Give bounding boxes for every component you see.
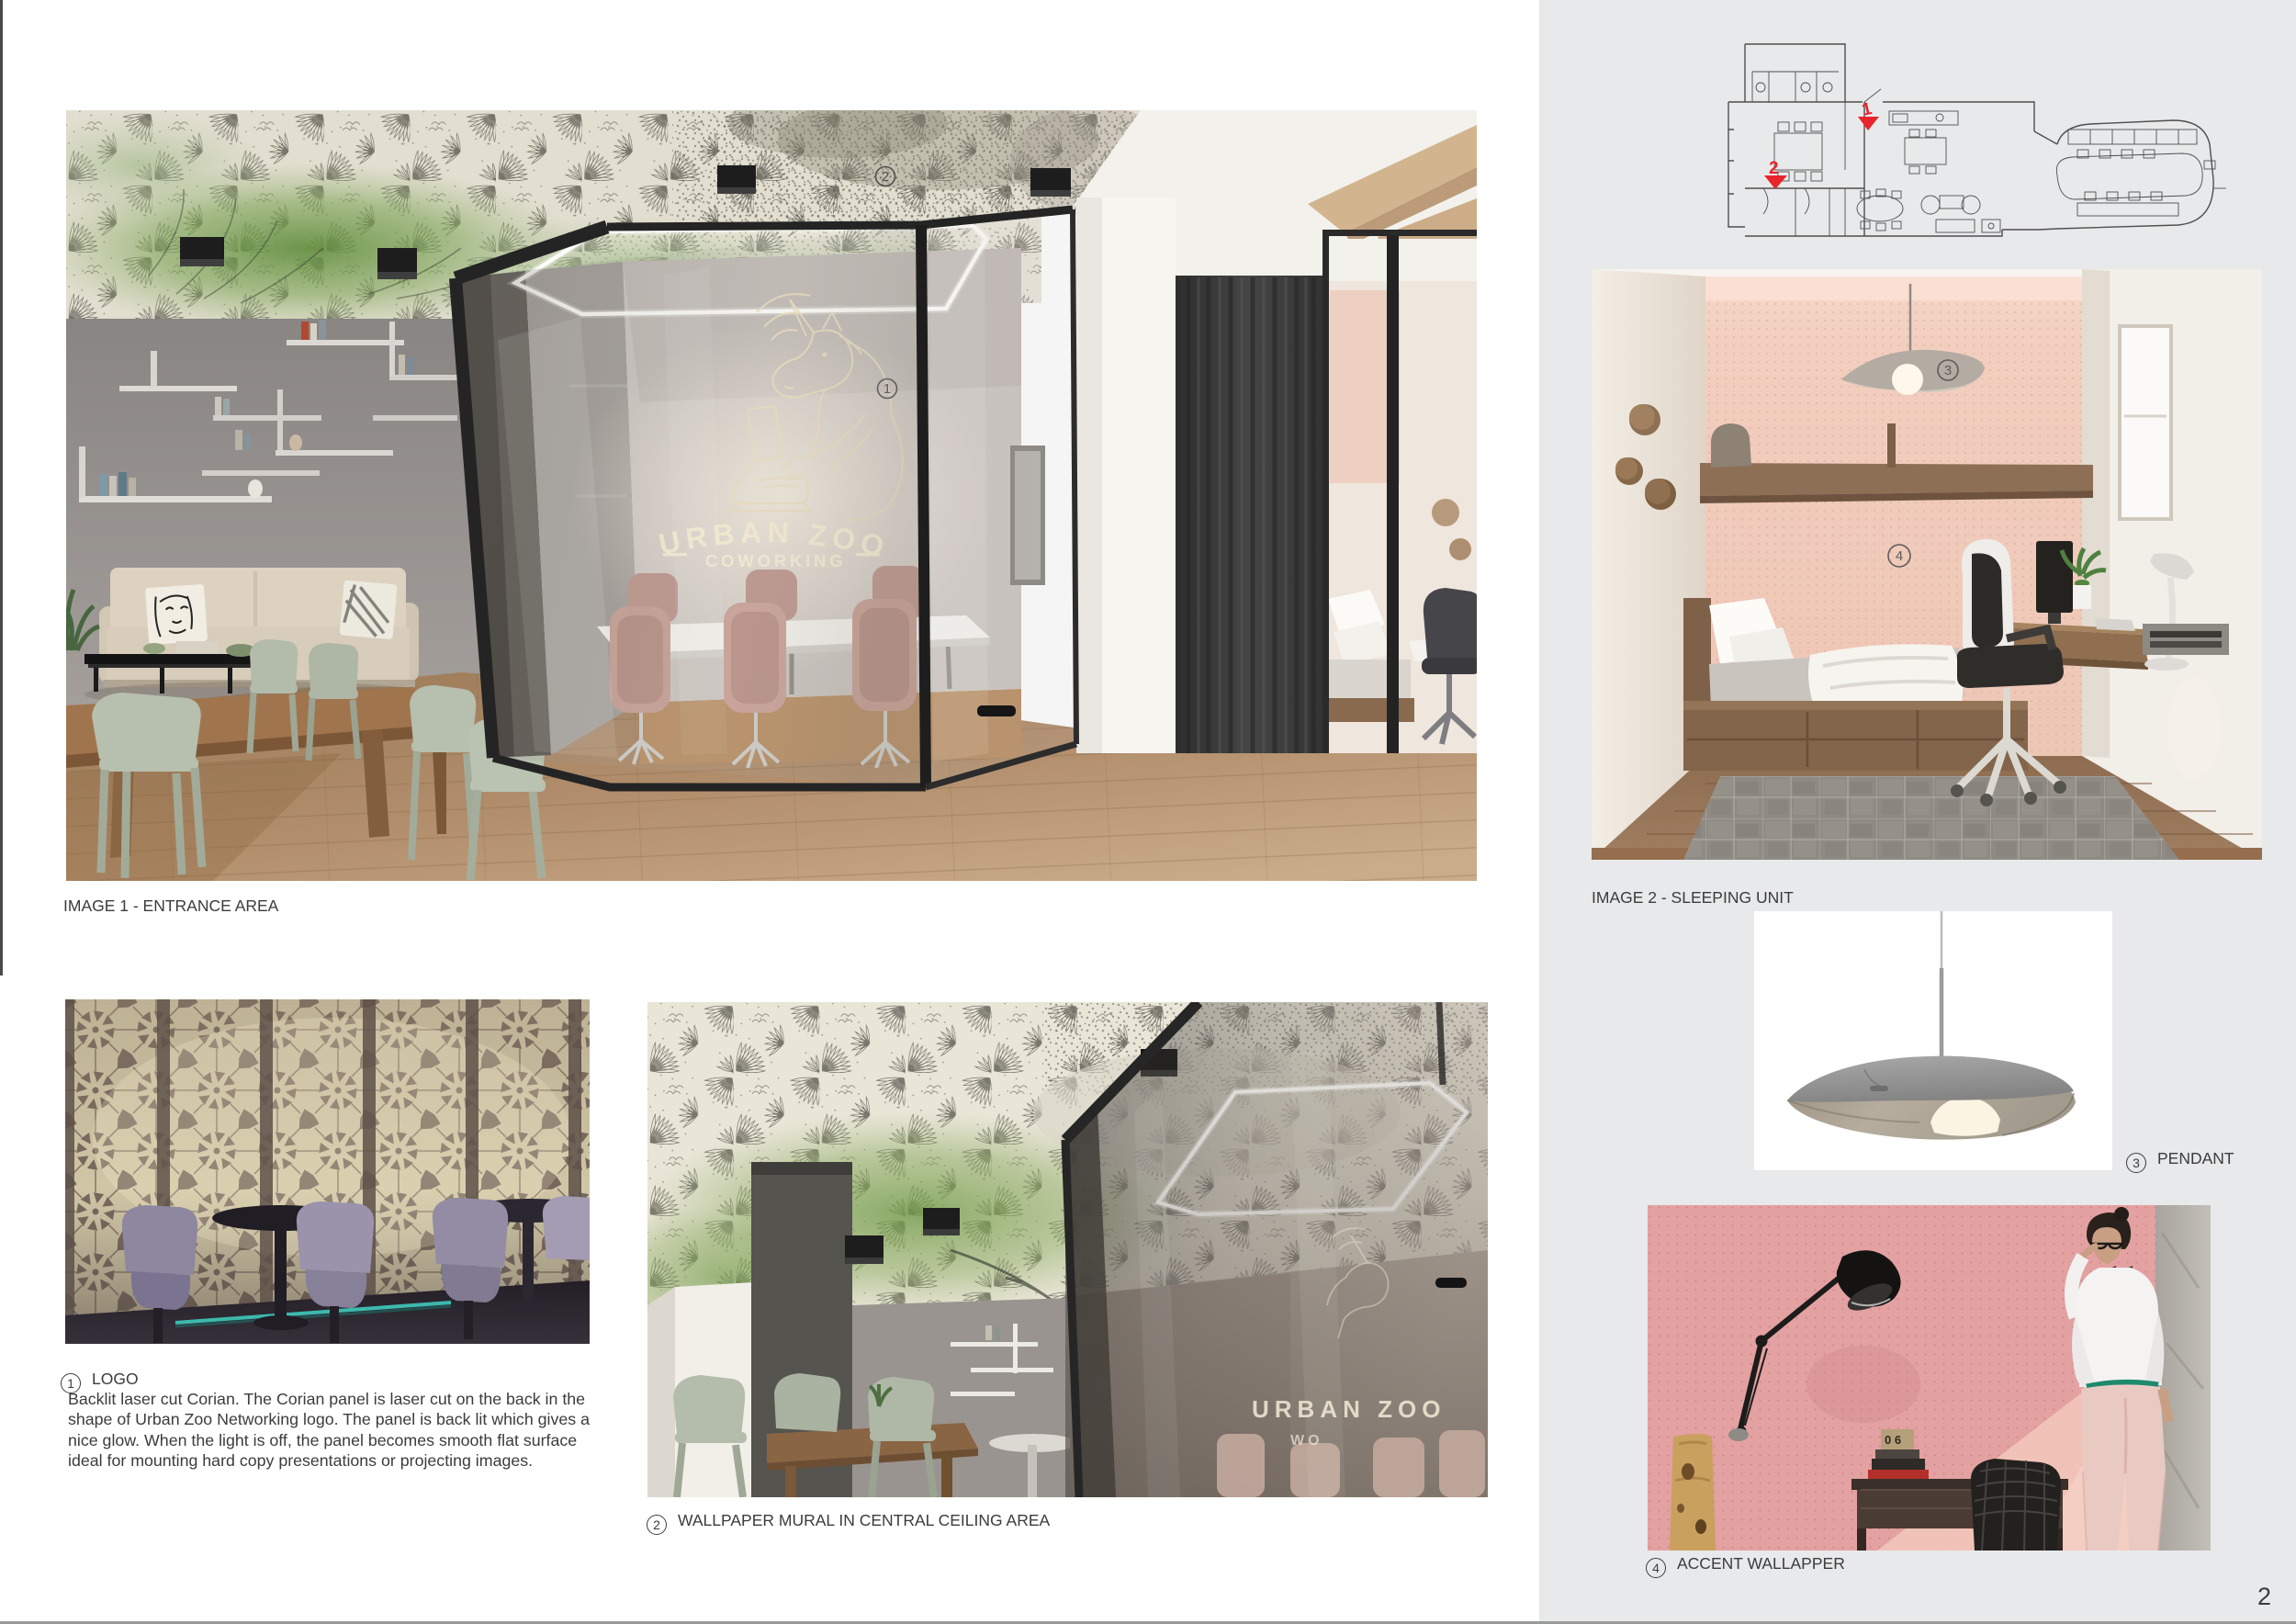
svg-text:3: 3	[1944, 363, 1952, 378]
svg-text:1: 1	[884, 381, 891, 397]
svg-text:4: 4	[1896, 548, 1903, 564]
svg-text:2: 2	[1769, 159, 1779, 178]
svg-text:2: 2	[882, 169, 889, 185]
svg-text:URBAN ZOO: URBAN ZOO	[1252, 1395, 1446, 1423]
svg-text:0 6: 0 6	[1885, 1433, 1901, 1447]
